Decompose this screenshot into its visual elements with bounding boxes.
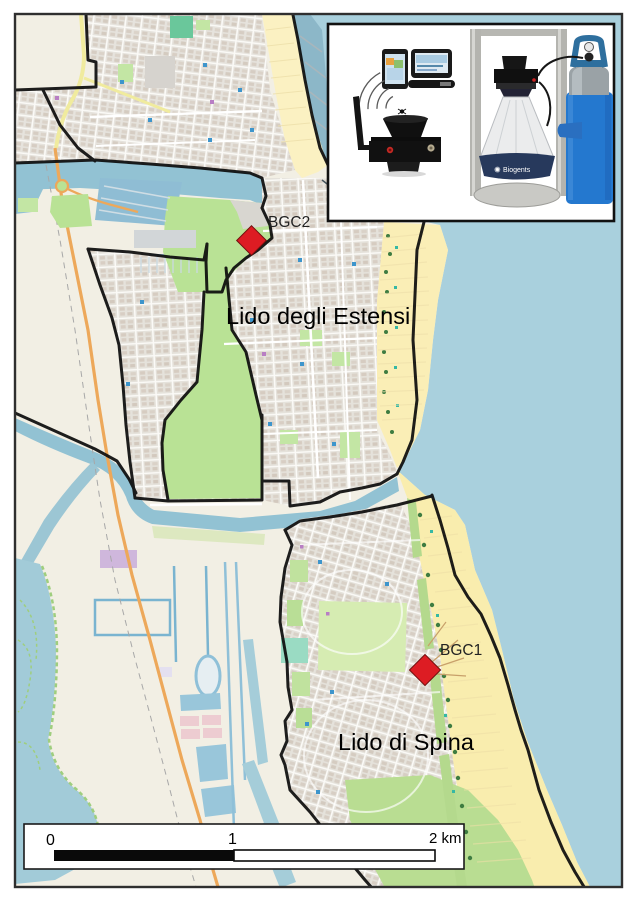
svg-text:2 km: 2 km [429,830,462,847]
svg-text:BGC2: BGC2 [268,214,310,231]
svg-text:✺: ✺ [494,166,501,175]
svg-text:0: 0 [46,832,55,849]
svg-text:Lido di Spina: Lido di Spina [338,729,475,755]
svg-text:1: 1 [228,831,237,848]
svg-text:Lido degli Estensi: Lido degli Estensi [226,303,410,329]
svg-text:Biogents: Biogents [503,167,531,174]
svg-text:BGC1: BGC1 [440,642,482,659]
